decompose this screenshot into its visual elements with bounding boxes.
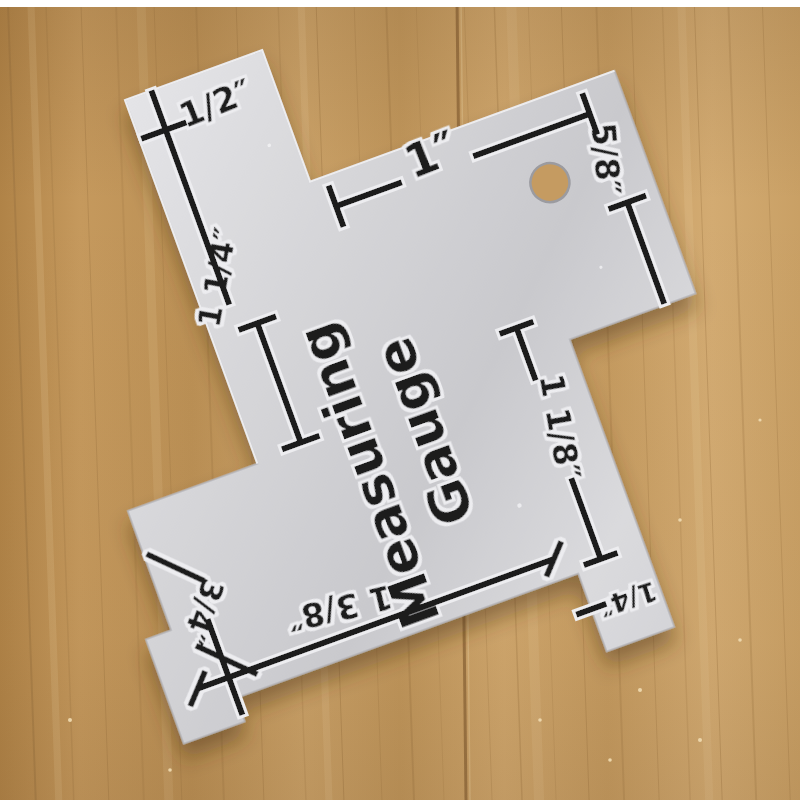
top-border	[0, 0, 800, 7]
measurement-label-five-eighths: 5/8″	[584, 121, 629, 197]
scene-canvas: 1/2″ 1 1/4″ 1″ 5/8″ 1 1/8″ 1/4″ 3/4″ 1 3…	[0, 0, 800, 800]
photo-scene: 1/2″ 1 1/4″ 1″ 5/8″ 1 1/8″ 1/4″ 3/4″ 1 3…	[0, 0, 800, 800]
